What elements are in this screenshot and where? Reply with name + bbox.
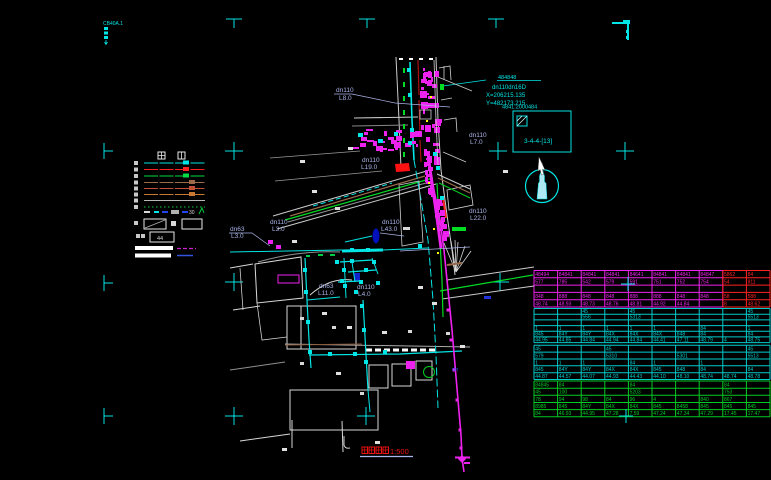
- svg-text:dn63: dn63: [230, 226, 245, 233]
- svg-text:48.73: 48.73: [582, 301, 595, 307]
- svg-text:dn: dn: [452, 367, 458, 373]
- svg-text:100: 100: [559, 390, 568, 396]
- svg-text:48.79: 48.79: [700, 337, 713, 343]
- svg-text:44.87: 44.87: [535, 374, 548, 380]
- svg-text:44.84: 44.84: [630, 337, 643, 343]
- svg-text:556: 556: [582, 315, 591, 321]
- svg-text:45: 45: [606, 347, 612, 353]
- svg-text:848: 848: [677, 294, 686, 300]
- svg-text:Y=482173.215: Y=482173.215: [486, 101, 526, 107]
- svg-text:dn110: dn110: [270, 219, 288, 226]
- svg-text:44.84: 44.84: [677, 301, 690, 307]
- svg-text:44.10: 44.10: [653, 374, 666, 380]
- svg-text:845: 845: [559, 404, 568, 410]
- svg-text:94: 94: [559, 397, 565, 403]
- svg-text:848: 848: [700, 294, 709, 300]
- svg-text:845: 845: [700, 404, 709, 410]
- svg-text:84: 84: [700, 367, 706, 373]
- svg-text:5203: 5203: [630, 390, 641, 396]
- svg-text:48.76: 48.76: [606, 301, 619, 307]
- svg-text:588: 588: [748, 294, 757, 300]
- svg-text:48.74: 48.74: [700, 374, 713, 380]
- svg-text:48.75: 48.75: [748, 337, 761, 343]
- svg-text:dn110: dn110: [382, 219, 400, 226]
- svg-text:L4.0: L4.0: [358, 291, 371, 298]
- svg-text:84X: 84X: [606, 367, 616, 373]
- svg-text:45: 45: [748, 347, 754, 353]
- svg-text:96: 96: [630, 397, 636, 403]
- svg-text:dn110: dn110: [469, 132, 487, 139]
- svg-text:L11.0: L11.0: [318, 290, 334, 297]
- svg-text:84: 84: [724, 383, 730, 389]
- svg-text:30: 30: [189, 210, 195, 216]
- svg-text:591: 591: [630, 280, 639, 286]
- svg-text:848: 848: [582, 294, 591, 300]
- svg-text:840: 840: [700, 397, 709, 403]
- svg-text:577: 577: [535, 280, 544, 286]
- svg-text:84Y: 84Y: [582, 404, 592, 410]
- svg-text:48.10: 48.10: [677, 374, 690, 380]
- svg-text:L22.0: L22.0: [470, 215, 487, 222]
- svg-text:1:500: 1:500: [390, 447, 409, 456]
- svg-text:48.81: 48.81: [630, 301, 643, 307]
- svg-text:dn110: dn110: [362, 157, 380, 164]
- svg-text:811: 811: [748, 280, 756, 286]
- svg-text:848: 848: [535, 294, 544, 300]
- svg-text:44.92: 44.92: [653, 301, 666, 307]
- svg-text:8458: 8458: [677, 404, 688, 410]
- svg-text:L3.0: L3.0: [272, 226, 285, 233]
- svg-text:48494: 48494: [535, 272, 549, 278]
- svg-text:47.28: 47.28: [606, 411, 619, 417]
- svg-text:845: 845: [653, 367, 662, 373]
- svg-text:753: 753: [724, 390, 733, 396]
- svg-text:47.24: 47.24: [653, 411, 666, 417]
- svg-text:1: 1: [535, 360, 538, 366]
- svg-text:48.74: 48.74: [535, 301, 548, 307]
- svg-text:84X: 84X: [606, 404, 616, 410]
- svg-text:84: 84: [559, 383, 565, 389]
- svg-text:84Y: 84Y: [559, 367, 569, 373]
- svg-text:dn110dn16D: dn110dn16D: [492, 85, 527, 91]
- svg-text:47.11: 47.11: [677, 337, 689, 343]
- svg-text:dn63: dn63: [319, 283, 334, 290]
- svg-text:44.85: 44.85: [559, 337, 572, 343]
- svg-text:47.29: 47.29: [700, 411, 713, 417]
- svg-text:5301: 5301: [677, 354, 688, 360]
- svg-text:5513: 5513: [748, 315, 759, 321]
- svg-text:84: 84: [630, 360, 636, 366]
- svg-text:845: 845: [748, 404, 757, 410]
- svg-text:754: 754: [700, 280, 709, 286]
- svg-text:48.74: 48.74: [724, 374, 737, 380]
- svg-text:5862: 5862: [724, 272, 735, 278]
- svg-text:3-4-4-[13]: 3-4-4-[13]: [524, 138, 552, 145]
- svg-text:845: 845: [724, 404, 733, 410]
- svg-text:579: 579: [535, 354, 544, 360]
- svg-text:5513: 5513: [748, 354, 759, 360]
- svg-text:5310: 5310: [606, 354, 617, 360]
- svg-text:L19.0: L19.0: [361, 164, 378, 171]
- svg-text:752: 752: [677, 280, 686, 286]
- svg-text:44.95: 44.95: [535, 337, 548, 343]
- svg-text:44.84: 44.84: [582, 337, 595, 343]
- svg-text:5313: 5313: [630, 315, 641, 321]
- svg-text:X=206215.135: X=206215.135: [486, 93, 526, 99]
- svg-text:48.93: 48.93: [559, 301, 572, 307]
- svg-text:84641: 84641: [630, 272, 644, 278]
- svg-text:dn110: dn110: [469, 208, 487, 215]
- svg-text:dn110: dn110: [357, 284, 375, 291]
- svg-text:44.94: 44.94: [606, 337, 619, 343]
- svg-text:1: 1: [700, 360, 703, 366]
- svg-text:1: 1: [582, 360, 585, 366]
- svg-text:L8.0: L8.0: [339, 95, 352, 102]
- svg-text:84841: 84841: [653, 272, 667, 278]
- svg-text:579: 579: [606, 280, 615, 286]
- svg-text:CB40A.1: CB40A.1: [103, 21, 123, 27]
- svg-text:8: 8: [724, 301, 727, 307]
- svg-text:17.45: 17.45: [724, 411, 737, 417]
- svg-text:L7.0: L7.0: [470, 139, 483, 146]
- svg-text:44.93: 44.93: [606, 374, 619, 380]
- svg-text:dn110: dn110: [336, 87, 354, 94]
- svg-text:1: 1: [559, 360, 562, 366]
- svg-text:48.62: 48.62: [748, 301, 761, 307]
- svg-text:84: 84: [630, 383, 636, 389]
- svg-text:888: 888: [630, 294, 639, 300]
- svg-text:84841: 84841: [559, 272, 573, 278]
- svg-text:84: 84: [748, 367, 754, 373]
- svg-text:54: 54: [724, 280, 730, 286]
- svg-text:848: 848: [677, 367, 686, 373]
- svg-text:8985: 8985: [535, 404, 546, 410]
- svg-text:84847: 84847: [700, 272, 714, 278]
- svg-text:84: 84: [535, 411, 541, 417]
- svg-text:542: 542: [582, 280, 591, 286]
- svg-text:84X: 84X: [630, 404, 640, 410]
- svg-text:44: 44: [157, 236, 163, 242]
- svg-text:845: 845: [653, 404, 662, 410]
- svg-text:46.93: 46.93: [559, 411, 572, 417]
- svg-text:848: 848: [606, 294, 615, 300]
- svg-text:44.57: 44.57: [559, 374, 572, 380]
- svg-text:4: 4: [724, 337, 727, 343]
- svg-text:45: 45: [535, 347, 541, 353]
- svg-text:84: 84: [606, 397, 612, 403]
- svg-text:84X: 84X: [630, 367, 640, 373]
- svg-text:78: 78: [535, 397, 541, 403]
- svg-text:58: 58: [724, 294, 730, 300]
- svg-text:888: 888: [559, 294, 568, 300]
- svg-text:48.78: 48.78: [748, 374, 761, 380]
- svg-text:17.47: 17.47: [748, 411, 761, 417]
- svg-text:44.95: 44.95: [582, 411, 595, 417]
- svg-text:L3.0: L3.0: [231, 233, 244, 240]
- svg-text:84845: 84845: [535, 383, 549, 389]
- svg-text:84841: 84841: [606, 272, 620, 278]
- svg-text:1: 1: [653, 360, 656, 366]
- svg-text:84841: 84841: [677, 272, 691, 278]
- svg-text:44.41: 44.41: [653, 337, 666, 343]
- svg-text:867: 867: [724, 397, 733, 403]
- svg-text:44.43: 44.43: [630, 374, 643, 380]
- svg-text:45: 45: [535, 390, 541, 396]
- svg-text:845: 845: [535, 367, 544, 373]
- svg-text:4: 4: [653, 397, 656, 403]
- svg-text:84841: 84841: [582, 272, 596, 278]
- svg-text:47.34: 47.34: [677, 411, 690, 417]
- svg-text:84Y: 84Y: [582, 367, 592, 373]
- svg-text:98: 98: [582, 397, 588, 403]
- svg-text:751: 751: [653, 280, 662, 286]
- svg-text:44.07: 44.07: [582, 374, 595, 380]
- svg-text:84: 84: [748, 272, 754, 278]
- svg-text:888: 888: [653, 294, 662, 300]
- svg-text:L43.0: L43.0: [381, 226, 398, 233]
- svg-text:785: 785: [559, 280, 568, 286]
